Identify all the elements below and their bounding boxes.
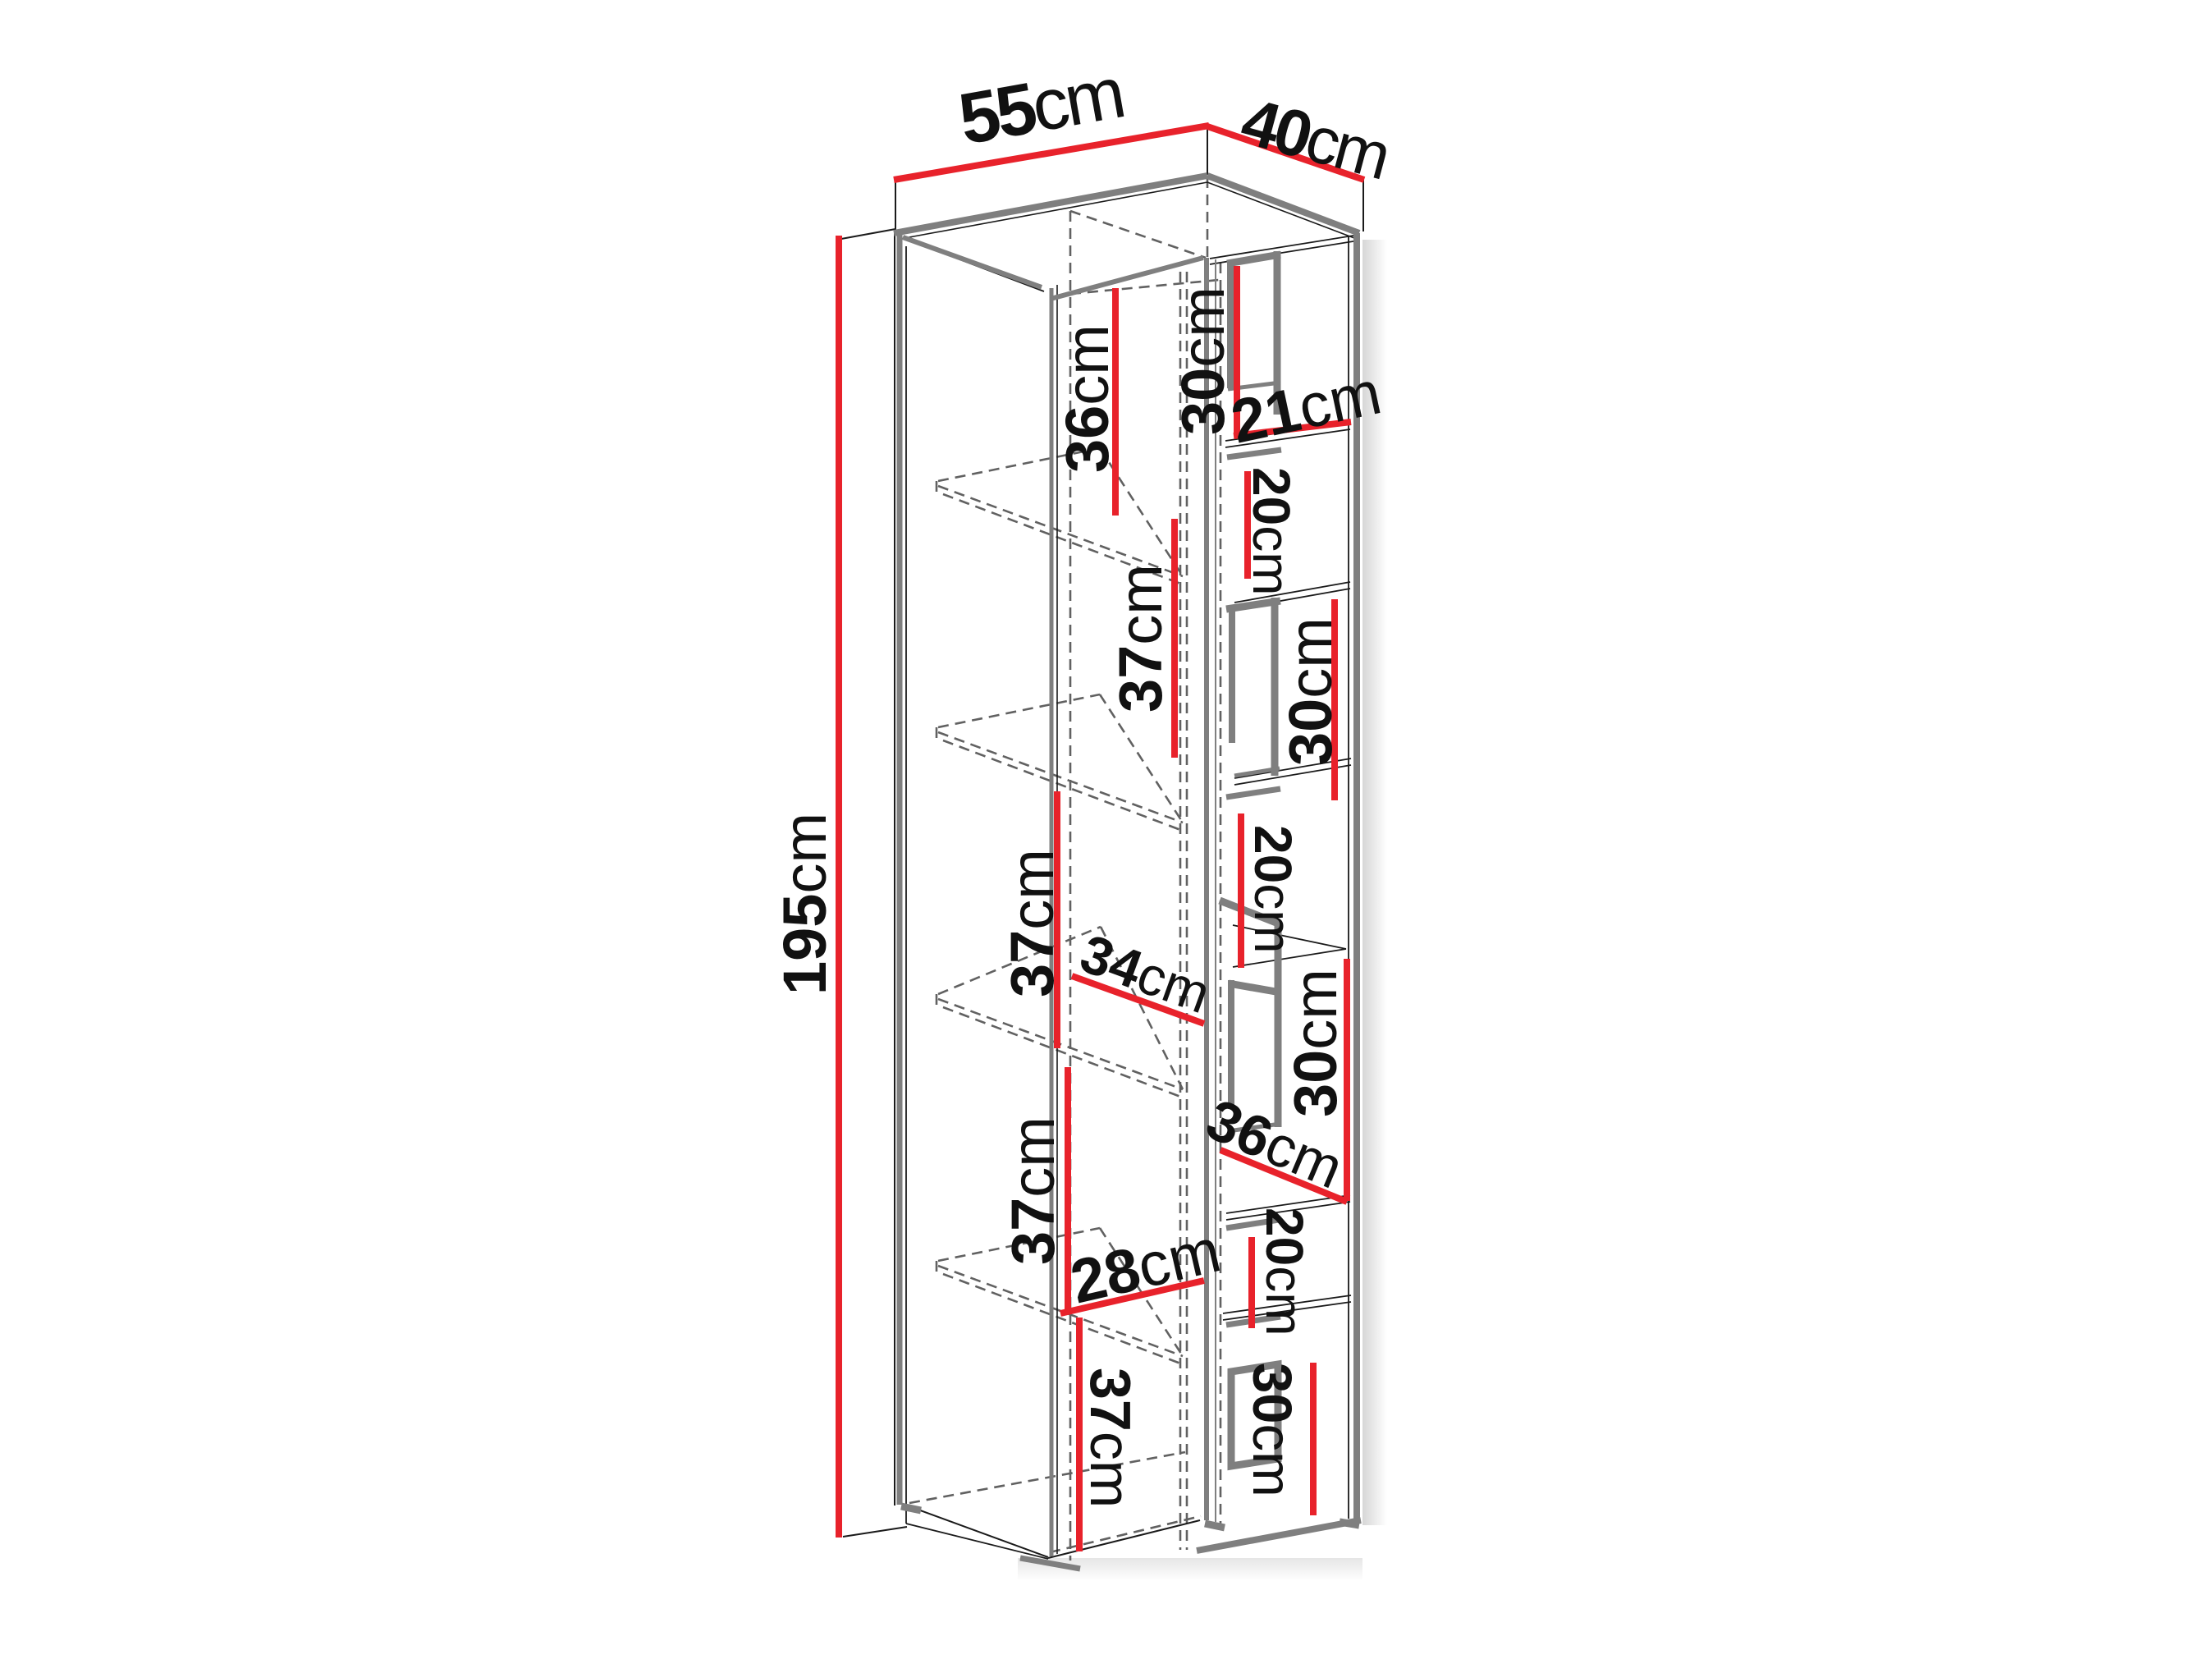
svg-text:20cm: 20cm xyxy=(1255,1208,1314,1336)
svg-text:37cm: 37cm xyxy=(1106,564,1175,713)
svg-text:36cm: 36cm xyxy=(1053,324,1121,473)
svg-text:195cm: 195cm xyxy=(771,813,839,995)
svg-text:20cm: 20cm xyxy=(1243,825,1303,954)
svg-text:30cm: 30cm xyxy=(1241,1363,1303,1497)
svg-text:30cm: 30cm xyxy=(1281,969,1349,1117)
svg-text:30cm: 30cm xyxy=(1169,286,1237,435)
svg-text:37cm: 37cm xyxy=(999,1116,1067,1265)
svg-text:37cm: 37cm xyxy=(998,849,1066,997)
svg-text:20cm: 20cm xyxy=(1242,467,1301,596)
svg-text:30cm: 30cm xyxy=(1276,617,1344,766)
svg-text:37cm: 37cm xyxy=(1079,1368,1143,1508)
